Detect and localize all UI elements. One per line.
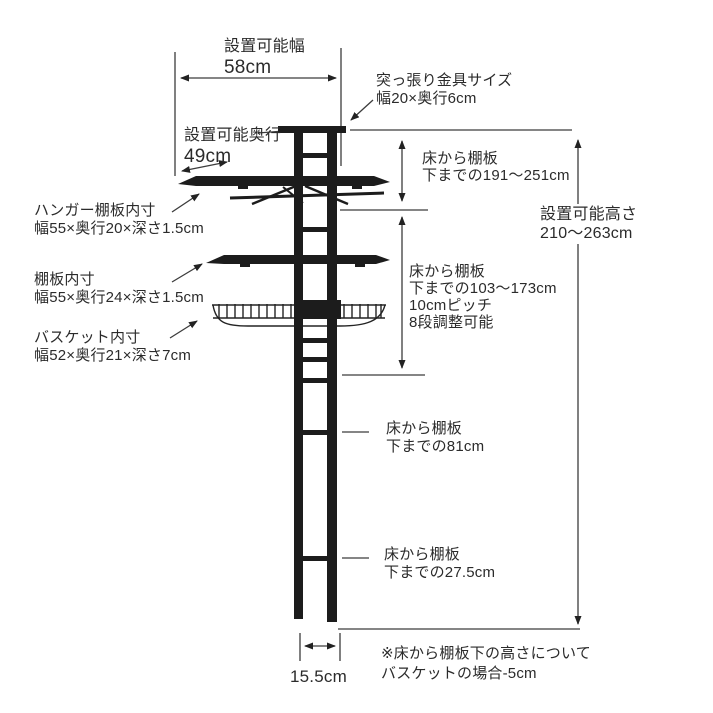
shelf-inner-title: 棚板内寸	[34, 271, 204, 289]
ladder-structure	[178, 126, 390, 622]
label-footnote: ※床から棚板下の高さについて バスケットの場合-5cm	[381, 644, 591, 684]
install-width-title: 設置可能幅	[224, 37, 305, 57]
base-width-value: 15.5cm	[290, 667, 347, 686]
ladder-pole-right	[327, 131, 337, 622]
label-install-height: 設置可能高さ 210〜263cm	[537, 204, 640, 244]
label-floor-to-shelf-adjust: 床から棚板 下までの103〜173cm 10cmピッチ 8段調整可能	[409, 263, 557, 331]
shelf-adjust-line2: 下までの103〜173cm	[409, 280, 557, 297]
install-width-value: 58cm	[224, 57, 305, 79]
floor-to-shelf-275-line2: 下までの27.5cm	[384, 564, 495, 582]
base-width-dimension	[300, 633, 340, 661]
bracket-pointer-arrow	[351, 100, 373, 120]
install-height-value: 210〜263cm	[540, 224, 637, 243]
floor-to-shelf-81-line2: 下までの81cm	[386, 438, 484, 456]
label-basket-inner: バスケット内寸 幅52×奥行21×深さ7cm	[34, 329, 191, 365]
label-floor-to-shelf-top: 床から棚板 下までの191〜251cm	[422, 150, 570, 184]
floor-to-shelf-top-line1: 床から棚板	[422, 150, 570, 167]
hanger-shelf-value: 幅55×奥行20×深さ1.5cm	[34, 220, 204, 238]
hanger-shelf-title: ハンガー棚板内寸	[34, 202, 204, 220]
shelf-inner-value: 幅55×奥行24×深さ1.5cm	[34, 289, 204, 307]
bracket-size-value: 幅20×奥行6cm	[376, 90, 512, 108]
basket-inner-title: バスケット内寸	[34, 329, 191, 347]
label-floor-to-shelf-275: 床から棚板 下までの27.5cm	[384, 546, 495, 582]
label-install-depth: 設置可能奥行 49cm	[184, 126, 281, 168]
floor-to-shelf-top-line2: 下までの191〜251cm	[422, 167, 570, 184]
shelf-adjust-line1: 床から棚板	[409, 263, 557, 280]
bracket-size-title: 突っ張り金具サイズ	[376, 72, 512, 90]
basket-inner-value: 幅52×奥行21×深さ7cm	[34, 347, 191, 365]
ladder-rungs	[302, 153, 328, 561]
label-shelf-inner: 棚板内寸 幅55×奥行24×深さ1.5cm	[34, 271, 204, 307]
label-base-width: 15.5cm	[290, 668, 347, 686]
label-floor-to-shelf-81: 床から棚板 下までの81cm	[386, 420, 484, 456]
shelf-adjust-line4: 8段調整可能	[409, 314, 557, 331]
label-hanger-shelf-inner: ハンガー棚板内寸 幅55×奥行20×深さ1.5cm	[34, 202, 204, 238]
install-depth-title: 設置可能奥行	[184, 126, 281, 146]
floor-to-shelf-81-line1: 床から棚板	[386, 420, 484, 438]
floor-to-shelf-275-line1: 床から棚板	[384, 546, 495, 564]
dimension-diagram: 設置可能幅 58cm 突っ張り金具サイズ 幅20×奥行6cm 設置可能奥行 49…	[0, 0, 713, 713]
shelf-adjust-line3: 10cmピッチ	[409, 297, 557, 314]
ladder-pole-left	[294, 131, 303, 619]
label-install-width: 設置可能幅 58cm	[224, 37, 305, 79]
label-bracket-size: 突っ張り金具サイズ 幅20×奥行6cm	[376, 72, 512, 108]
footnote-line2: バスケットの場合-5cm	[381, 664, 591, 684]
install-height-title: 設置可能高さ	[540, 205, 637, 224]
install-depth-value: 49cm	[184, 146, 281, 168]
footnote-line1: ※床から棚板下の高さについて	[381, 644, 591, 664]
